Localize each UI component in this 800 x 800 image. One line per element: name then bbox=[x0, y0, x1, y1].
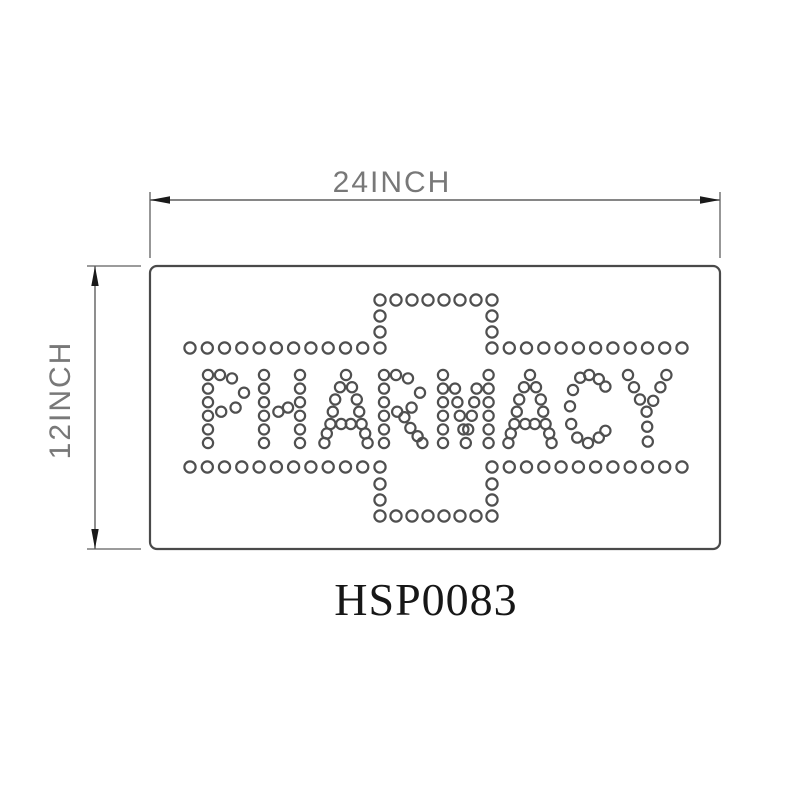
led-dot bbox=[379, 424, 389, 434]
led-dot bbox=[379, 411, 389, 421]
led-dot bbox=[295, 424, 305, 434]
led-dot bbox=[406, 294, 417, 305]
led-dot bbox=[305, 342, 316, 353]
led-dot bbox=[288, 461, 299, 472]
led-dot bbox=[625, 342, 636, 353]
led-dot bbox=[642, 407, 652, 417]
led-dot bbox=[642, 461, 653, 472]
led-dot bbox=[486, 510, 497, 521]
led-dot bbox=[438, 411, 448, 421]
led-dot bbox=[227, 373, 237, 383]
led-dot bbox=[659, 342, 670, 353]
led-dot bbox=[390, 294, 401, 305]
led-dot bbox=[486, 461, 497, 472]
led-dot bbox=[676, 342, 687, 353]
led-dot bbox=[239, 388, 249, 398]
led-dot bbox=[203, 384, 213, 394]
led-dot bbox=[484, 384, 494, 394]
led-dot bbox=[374, 310, 385, 321]
led-dot bbox=[590, 342, 601, 353]
arrow-left-icon bbox=[150, 196, 170, 203]
led-dot bbox=[504, 342, 515, 353]
led-dot bbox=[512, 407, 522, 417]
led-dot bbox=[538, 407, 548, 417]
led-dot bbox=[607, 342, 618, 353]
led-dot bbox=[467, 411, 477, 421]
led-dot bbox=[470, 510, 481, 521]
led-dot bbox=[236, 342, 247, 353]
led-dot bbox=[340, 461, 351, 472]
led-dot bbox=[519, 382, 529, 392]
led-dot bbox=[259, 424, 269, 434]
led-dot bbox=[461, 438, 471, 448]
led-dot bbox=[573, 461, 584, 472]
led-dot bbox=[374, 510, 385, 521]
led-dot bbox=[341, 370, 351, 380]
technical-drawing: 24INCH 12INCH HSP0083 bbox=[0, 0, 800, 800]
led-dot bbox=[295, 411, 305, 421]
led-dot bbox=[363, 438, 373, 448]
led-dot bbox=[374, 342, 385, 353]
led-dot bbox=[295, 384, 305, 394]
led-dot bbox=[572, 433, 582, 443]
led-dot bbox=[216, 407, 226, 417]
led-dot bbox=[354, 407, 364, 417]
led-dot bbox=[379, 384, 389, 394]
led-dot bbox=[422, 510, 433, 521]
led-dot bbox=[374, 494, 385, 505]
led-dot bbox=[203, 370, 213, 380]
sign-panel-outline bbox=[150, 266, 720, 549]
led-dot bbox=[521, 342, 532, 353]
led-dot bbox=[391, 370, 401, 380]
led-dot bbox=[486, 342, 497, 353]
led-dot bbox=[486, 494, 497, 505]
led-dot bbox=[454, 294, 465, 305]
led-dot bbox=[625, 461, 636, 472]
led-dot bbox=[642, 342, 653, 353]
led-dot bbox=[374, 326, 385, 337]
led-dot bbox=[469, 397, 479, 407]
led-dot bbox=[330, 394, 340, 404]
led-dot bbox=[676, 461, 687, 472]
led-dot bbox=[422, 294, 433, 305]
led-dot bbox=[655, 382, 665, 392]
led-dot bbox=[295, 370, 305, 380]
led-dot bbox=[486, 478, 497, 489]
led-dot bbox=[514, 394, 524, 404]
led-dot bbox=[219, 342, 230, 353]
led-dot bbox=[202, 342, 213, 353]
led-dot bbox=[486, 310, 497, 321]
led-dot bbox=[271, 342, 282, 353]
led-dot bbox=[328, 407, 338, 417]
led-dot bbox=[407, 403, 417, 413]
led-dot bbox=[438, 424, 448, 434]
led-dot bbox=[648, 396, 658, 406]
led-dot bbox=[323, 461, 334, 472]
led-dot bbox=[390, 510, 401, 521]
led-dot bbox=[379, 438, 389, 448]
led-dot bbox=[556, 461, 567, 472]
led-dot bbox=[379, 370, 389, 380]
led-dot bbox=[259, 370, 269, 380]
led-dot bbox=[347, 382, 357, 392]
led-dot bbox=[259, 411, 269, 421]
led-dot bbox=[600, 426, 610, 436]
led-dot bbox=[659, 461, 670, 472]
width-dimension-label: 24INCH bbox=[333, 166, 452, 199]
led-dot bbox=[231, 403, 241, 413]
led-dot bbox=[203, 397, 213, 407]
led-dot bbox=[295, 397, 305, 407]
led-dot bbox=[295, 438, 305, 448]
led-dot bbox=[184, 461, 195, 472]
led-dot bbox=[486, 326, 497, 337]
led-dot bbox=[531, 382, 541, 392]
led-dot bbox=[438, 294, 449, 305]
led-dot bbox=[203, 438, 213, 448]
led-dot bbox=[352, 394, 362, 404]
led-dot bbox=[629, 382, 639, 392]
led-dot bbox=[438, 510, 449, 521]
led-dot bbox=[547, 438, 557, 448]
led-dot bbox=[219, 461, 230, 472]
led-dot bbox=[184, 342, 195, 353]
led-dot bbox=[399, 412, 409, 422]
led-dot bbox=[635, 394, 645, 404]
led-dot bbox=[438, 438, 448, 448]
led-dot bbox=[202, 461, 213, 472]
led-dot bbox=[504, 461, 515, 472]
led-dot bbox=[305, 461, 316, 472]
led-dot bbox=[403, 373, 413, 383]
led-dot bbox=[661, 370, 671, 380]
led-dot bbox=[271, 461, 282, 472]
led-dot bbox=[484, 370, 494, 380]
led-dot bbox=[607, 461, 618, 472]
led-dot bbox=[454, 510, 465, 521]
led-dot bbox=[536, 394, 546, 404]
led-dot bbox=[357, 342, 368, 353]
led-dot bbox=[323, 342, 334, 353]
led-dot bbox=[486, 294, 497, 305]
led-dot bbox=[600, 382, 610, 392]
led-dot bbox=[583, 438, 593, 448]
led-dot bbox=[452, 397, 462, 407]
arrow-right-icon bbox=[700, 196, 720, 203]
led-dot bbox=[590, 461, 601, 472]
led-dot bbox=[254, 342, 265, 353]
led-dot bbox=[335, 382, 345, 392]
led-dot bbox=[450, 384, 460, 394]
led-dot bbox=[374, 461, 385, 472]
led-dot bbox=[259, 438, 269, 448]
led-dot bbox=[283, 403, 293, 413]
led-dot bbox=[538, 461, 549, 472]
led-dot bbox=[406, 510, 417, 521]
led-dot bbox=[259, 384, 269, 394]
led-dot bbox=[455, 411, 465, 421]
led-dot bbox=[374, 478, 385, 489]
led-dot bbox=[472, 384, 482, 394]
led-dot bbox=[521, 461, 532, 472]
led-dot bbox=[357, 461, 368, 472]
led-dot bbox=[203, 411, 213, 421]
led-dot bbox=[573, 342, 584, 353]
led-dot bbox=[340, 342, 351, 353]
led-dot bbox=[643, 437, 653, 447]
vertical-dimension: 12INCH bbox=[44, 266, 141, 549]
led-dot bbox=[438, 384, 448, 394]
led-dot bbox=[484, 411, 494, 421]
led-dot bbox=[319, 438, 329, 448]
led-dot bbox=[438, 397, 448, 407]
led-dot bbox=[259, 397, 269, 407]
led-dot bbox=[288, 342, 299, 353]
led-dot bbox=[538, 342, 549, 353]
led-dot bbox=[503, 438, 513, 448]
led-dot bbox=[525, 370, 535, 380]
height-dimension-label: 12INCH bbox=[44, 341, 77, 460]
led-dot bbox=[484, 438, 494, 448]
led-dot bbox=[374, 294, 385, 305]
led-dot bbox=[379, 397, 389, 407]
led-dot bbox=[438, 370, 448, 380]
led-dot bbox=[470, 294, 481, 305]
led-dot bbox=[484, 397, 494, 407]
led-dot bbox=[565, 401, 575, 411]
led-dot bbox=[623, 370, 633, 380]
product-code-label: HSP0083 bbox=[334, 574, 517, 625]
horizontal-dimension: 24INCH bbox=[150, 166, 720, 258]
led-dot bbox=[215, 370, 225, 380]
led-dot bbox=[556, 342, 567, 353]
led-dot bbox=[568, 385, 578, 395]
led-dot bbox=[203, 424, 213, 434]
led-dot bbox=[415, 388, 425, 398]
led-dot bbox=[236, 461, 247, 472]
led-dot bbox=[642, 422, 652, 432]
pharmacy-cross-dot-matrix bbox=[184, 294, 687, 521]
arrow-down-icon bbox=[91, 529, 98, 549]
drawing-canvas: 24INCH 12INCH HSP0083 bbox=[0, 0, 800, 800]
led-dot bbox=[254, 461, 265, 472]
led-dot bbox=[566, 419, 576, 429]
led-dot bbox=[484, 424, 494, 434]
arrow-up-icon bbox=[91, 266, 98, 286]
